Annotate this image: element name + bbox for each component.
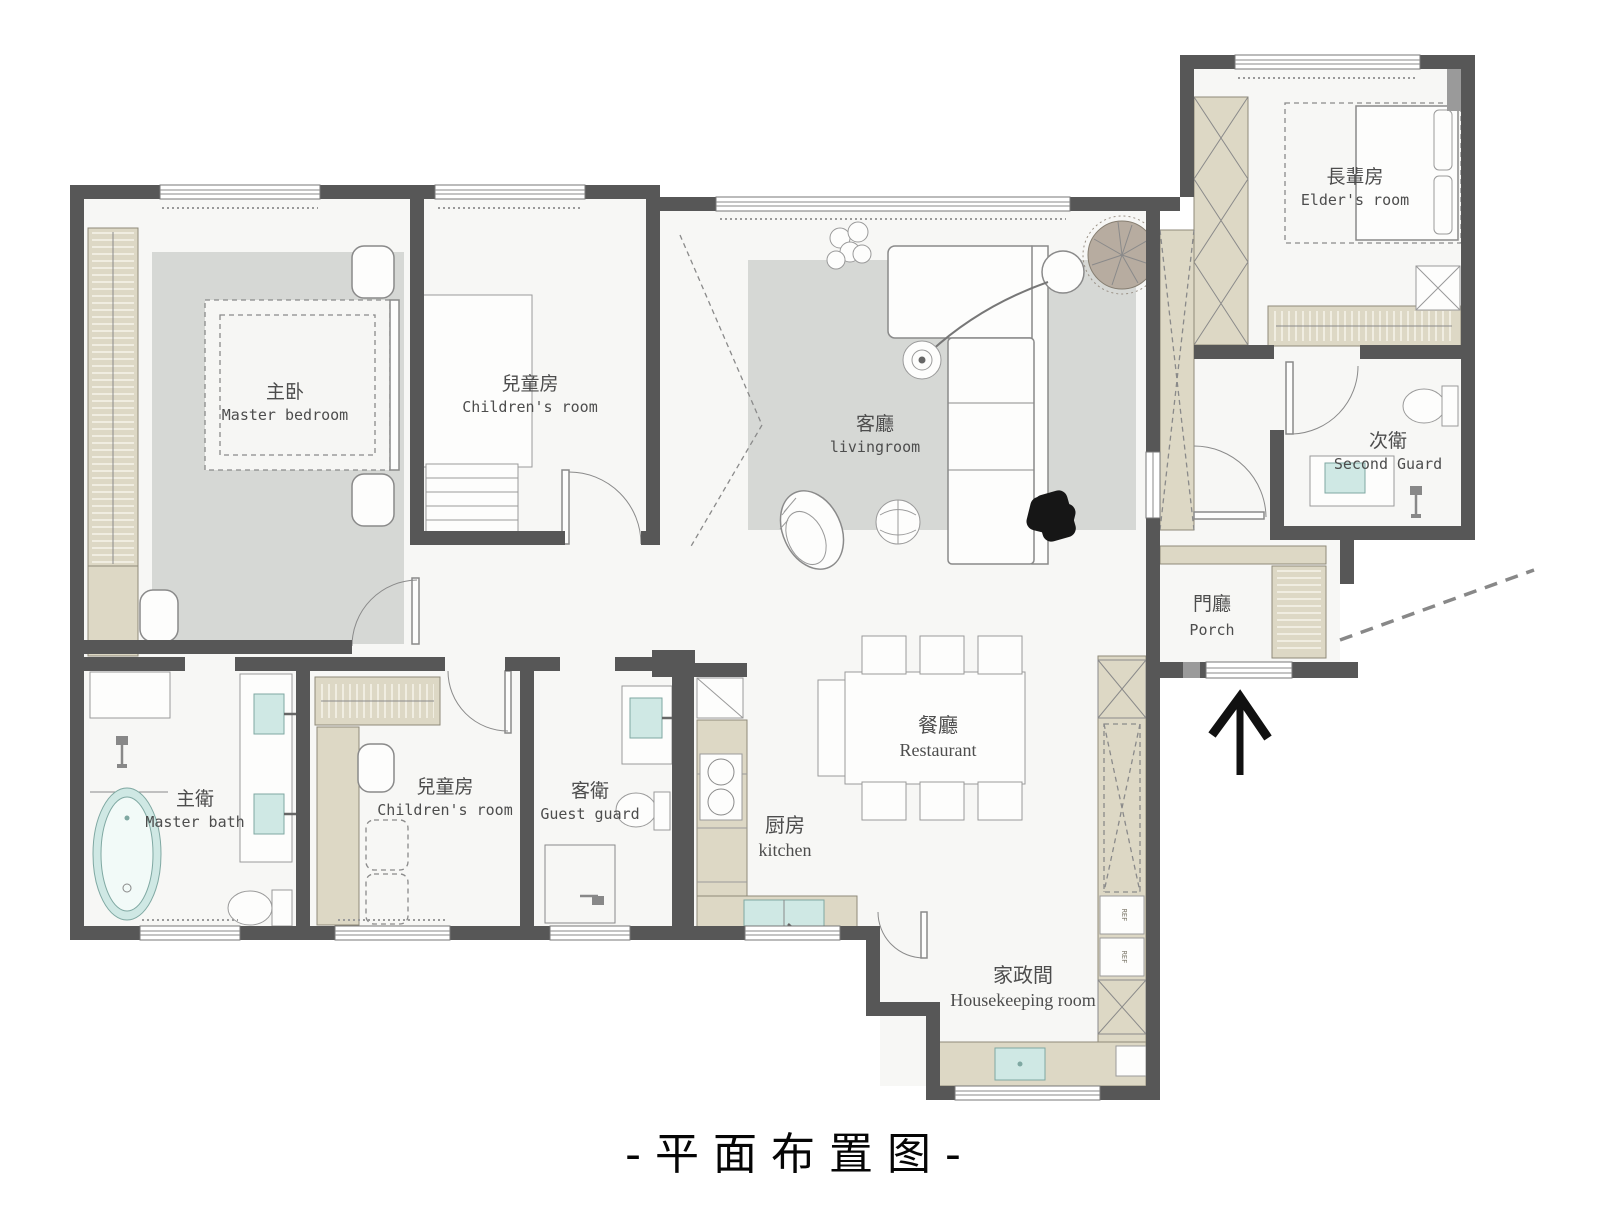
room-label-zh: 兒童房 [501, 373, 558, 395]
nightstand [352, 246, 394, 298]
room-label-zh: 餐廳 [918, 714, 958, 737]
balcony-door-leaf [1146, 452, 1160, 518]
room-label-en: Porch [1189, 621, 1234, 639]
door-leaf [1286, 362, 1293, 434]
stove [700, 754, 742, 820]
room-label-zh: 長輩房 [1326, 166, 1383, 188]
room-label-en: Children's room [462, 398, 597, 416]
globe-decor [876, 500, 920, 544]
room-label-zh: 門廳 [1193, 593, 1231, 615]
pillow [1434, 176, 1452, 234]
window [955, 1086, 1100, 1100]
room-label-en: Guest guard [540, 805, 639, 823]
bench [818, 680, 846, 776]
fridge-label: REF [1120, 909, 1128, 922]
room-label-zh: 主衛 [176, 788, 214, 810]
room-label-en: Master bath [145, 813, 244, 831]
room-label-zh: 客衛 [571, 780, 609, 802]
room-master-bedroom: 主卧 Master bedroom [88, 228, 419, 656]
toilet-tank [654, 792, 670, 830]
room-label-en: Housekeeping room [950, 990, 1095, 1010]
desk [317, 727, 359, 925]
toilet-bowl [1403, 389, 1445, 423]
entry-path-dashed-line [1340, 570, 1534, 640]
toilet-tank [1442, 386, 1458, 426]
cabinet-column [1098, 656, 1146, 1044]
plan-title: -平面布置图- [0, 1118, 1600, 1182]
chair [978, 782, 1022, 820]
basin [1116, 1046, 1146, 1076]
entry-door-sill [1206, 662, 1292, 678]
floor-plan-page: 主卧 Master bedroom 兒童房 Children's room [0, 0, 1600, 1228]
room-label-en: Second Guard [1334, 455, 1442, 473]
room-label-en: kitchen [759, 840, 812, 860]
door-leaf [921, 912, 927, 958]
chair [920, 782, 964, 820]
room-living: 客廳 livingroom [680, 216, 1161, 579]
toilet-bowl [228, 891, 272, 925]
room-label-zh: 家政間 [993, 964, 1053, 987]
toilet-tank [272, 890, 292, 926]
window [335, 926, 450, 940]
room-label-zh: 客廳 [856, 413, 894, 435]
door-leaf [412, 578, 419, 644]
window [1235, 55, 1420, 69]
room-label-en: Elder's room [1301, 191, 1409, 209]
room-label-zh: 主卧 [266, 381, 304, 403]
chair [862, 636, 906, 674]
sofa-seat [948, 338, 1034, 564]
sink [254, 794, 284, 834]
window [140, 926, 240, 940]
headboard [390, 300, 399, 470]
room-label-en: Restaurant [900, 740, 977, 760]
chair [920, 636, 964, 674]
floor-plan-drawing: 主卧 Master bedroom 兒童房 Children's room [0, 0, 1600, 1228]
bathtub [93, 788, 161, 920]
washer-box [90, 672, 170, 718]
room-label-en: livingroom [830, 438, 920, 456]
pillow [1434, 110, 1452, 170]
chair [978, 636, 1022, 674]
side-table [1042, 251, 1084, 293]
window [550, 926, 630, 940]
chair [862, 782, 906, 820]
chair [358, 744, 394, 792]
entry-direction-arrow [1212, 697, 1268, 775]
nightstand [352, 474, 394, 526]
room-label-en: Master bedroom [222, 406, 348, 424]
drain [1018, 1062, 1023, 1067]
window [435, 185, 585, 199]
door-leaf [505, 671, 511, 733]
room-label-en: Children's room [377, 801, 512, 819]
dresser [426, 464, 518, 536]
window [716, 197, 1070, 211]
room-label-zh: 次衛 [1369, 430, 1407, 452]
fridge-label: REF [1120, 951, 1128, 964]
window [745, 926, 840, 940]
room-label-zh: 兒童房 [416, 776, 473, 798]
cabinet-band [1160, 546, 1326, 564]
sink [254, 694, 284, 734]
door-leaf [1194, 512, 1264, 519]
room-label-zh: 厨房 [765, 814, 805, 837]
chair [140, 590, 178, 642]
sink [630, 698, 662, 738]
window [160, 185, 320, 199]
tall-cabinet-column: REF REF [1098, 656, 1146, 1086]
